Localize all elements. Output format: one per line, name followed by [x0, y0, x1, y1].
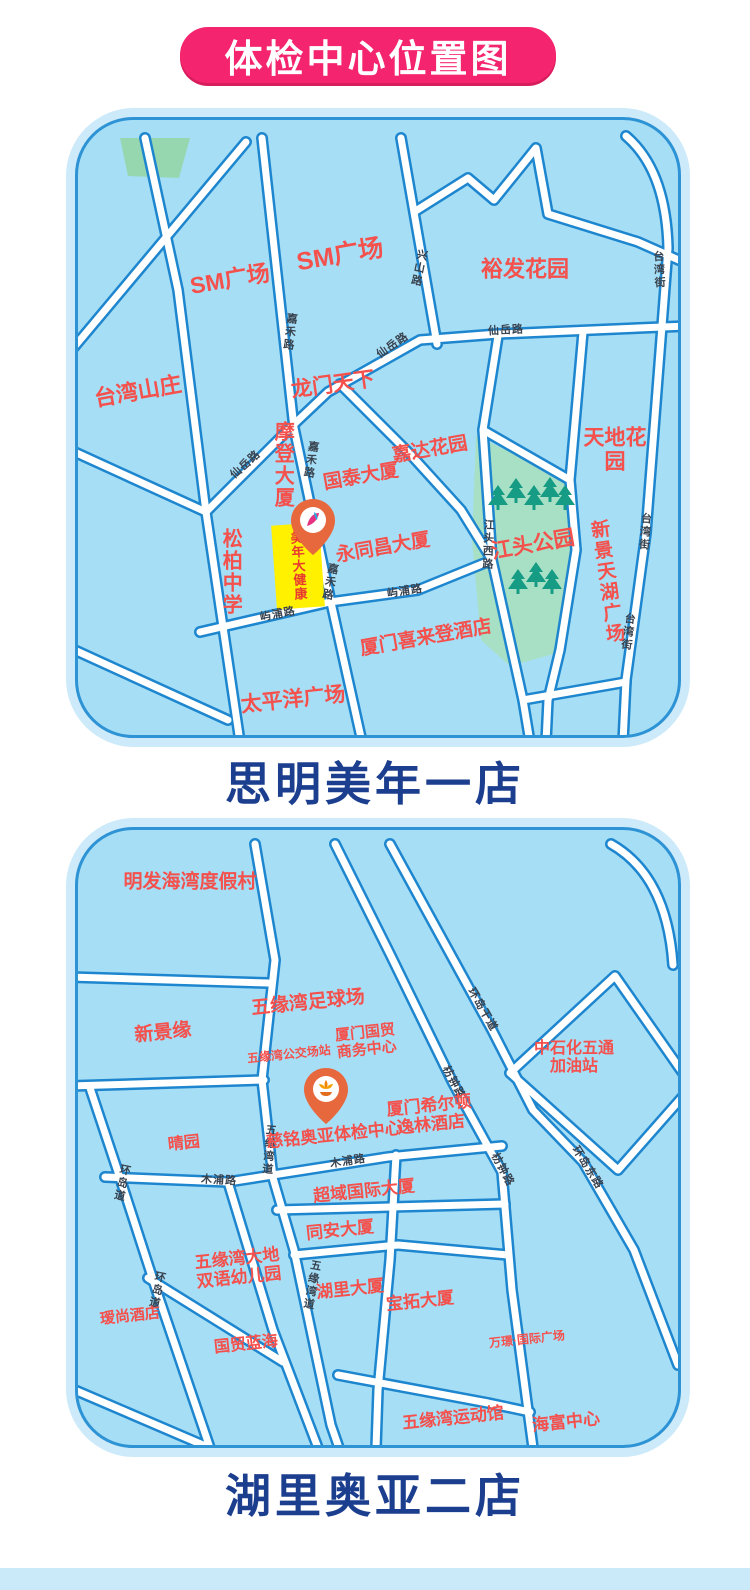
- pin-icon: [303, 1067, 349, 1125]
- map-siming: 美年大健康 SM广场SM广场裕发花园台湾山庄龙门天下摩登大厦国泰大厦嘉达花园天地…: [75, 117, 681, 738]
- pin-icon: [290, 498, 336, 556]
- map-card-huli: 明发海湾度假村新景缘五缘湾足球场厦门国贸 商务中心五缘湾公交场站中石化五通 加油…: [66, 818, 690, 1457]
- map-roads-svg: [78, 830, 678, 1445]
- map-huli: 明发海湾度假村新景缘五缘湾足球场厦门国贸 商务中心五缘湾公交场站中石化五通 加油…: [75, 827, 681, 1448]
- map-caption-huli: 湖里奥亚二店: [0, 1460, 750, 1526]
- map-card-siming: 美年大健康 SM广场SM广场裕发花园台湾山庄龙门天下摩登大厦国泰大厦嘉达花园天地…: [66, 108, 690, 747]
- location-pin-meinian: [290, 498, 336, 556]
- road-surfaces: [78, 844, 678, 1445]
- page-title: 体检中心位置图: [224, 28, 511, 83]
- page-title-banner: 体检中心位置图: [180, 27, 556, 83]
- map-caption-siming: 思明美年一店: [0, 748, 750, 814]
- footer-strip: [0, 1568, 750, 1590]
- location-pin-ciming: [303, 1067, 349, 1125]
- map-roads-svg: [78, 120, 678, 735]
